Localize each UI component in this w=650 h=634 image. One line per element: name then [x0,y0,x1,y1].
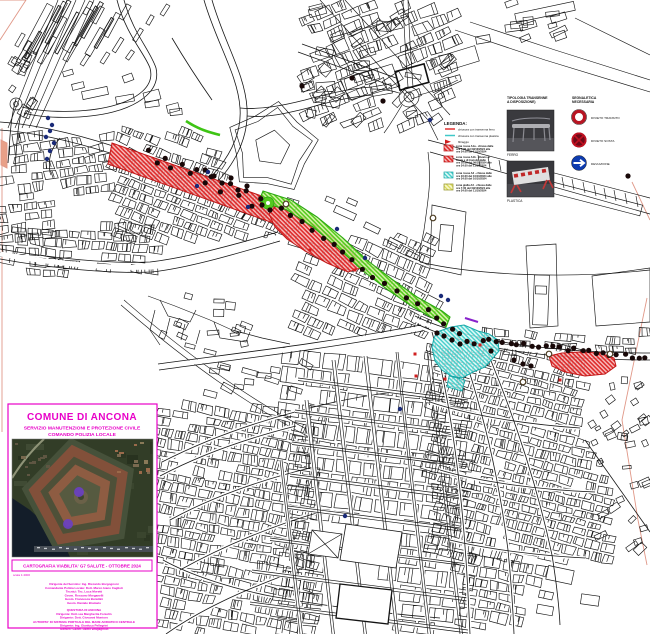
svg-text:FERRO: FERRO [507,153,519,157]
svg-text:ore 24.00 del 11/10/2024: ore 24.00 del 11/10/2024 [456,150,487,154]
svg-text:Dirigente: Dott. Giovanni Mont: Dirigente: Dott. Giovanni Montoro [60,616,108,620]
svg-text:COMANDO POLIZIA LOCALE: COMANDO POLIZIA LOCALE [48,432,116,438]
svg-text:NECESSARIA: NECESSARIA [572,100,595,104]
svg-text:PLASTICA: PLASTICA [507,199,523,203]
svg-text:ore 24.00 del 11/10/2024: ore 24.00 del 11/10/2024 [456,189,487,193]
svg-text:LEGENDA:: LEGENDA: [444,121,467,126]
svg-text:ore 24.00 del 10/10/2024: ore 24.00 del 10/10/2024 [456,177,487,181]
svg-text:ore 24.00 del 11/10/2024: ore 24.00 del 11/10/2024 [456,163,487,167]
svg-text:DIVIETO SOSTA: DIVIETO SOSTA [591,139,615,143]
svg-text:DIVIETO TRANSITO: DIVIETO TRANSITO [591,116,620,120]
svg-text:scala 1:4000: scala 1:4000 [13,573,30,577]
svg-text:filtraggio: filtraggio [458,140,469,144]
svg-text:Tecnico: Geom. Remo Bragagnolo: Tecnico: Geom. Remo Bragagnolo [60,627,109,631]
svg-text:A DISPOSIZIONE): A DISPOSIZIONE) [507,100,536,104]
svg-text:chiusura con transenna plastic: chiusura con transenna plastica [458,134,499,138]
svg-text:SERVIZIO MANUTENZIONI E PROTEZ: SERVIZIO MANUTENZIONI E PROTEZIONE CIVIL… [24,426,141,432]
svg-text:COMUNE DI ANCONA: COMUNE DI ANCONA [27,412,137,423]
svg-text:CARTOGRAFIA VIABILITA' G7 SALU: CARTOGRAFIA VIABILITA' G7 SALUTE - OTTOB… [23,564,141,569]
svg-text:DEVIAZIONE: DEVIAZIONE [591,162,610,166]
svg-text:Geom. Daniele Bramato: Geom. Daniele Bramato [67,601,101,605]
svg-text:chiusura con transenna ferro: chiusura con transenna ferro [458,128,495,132]
